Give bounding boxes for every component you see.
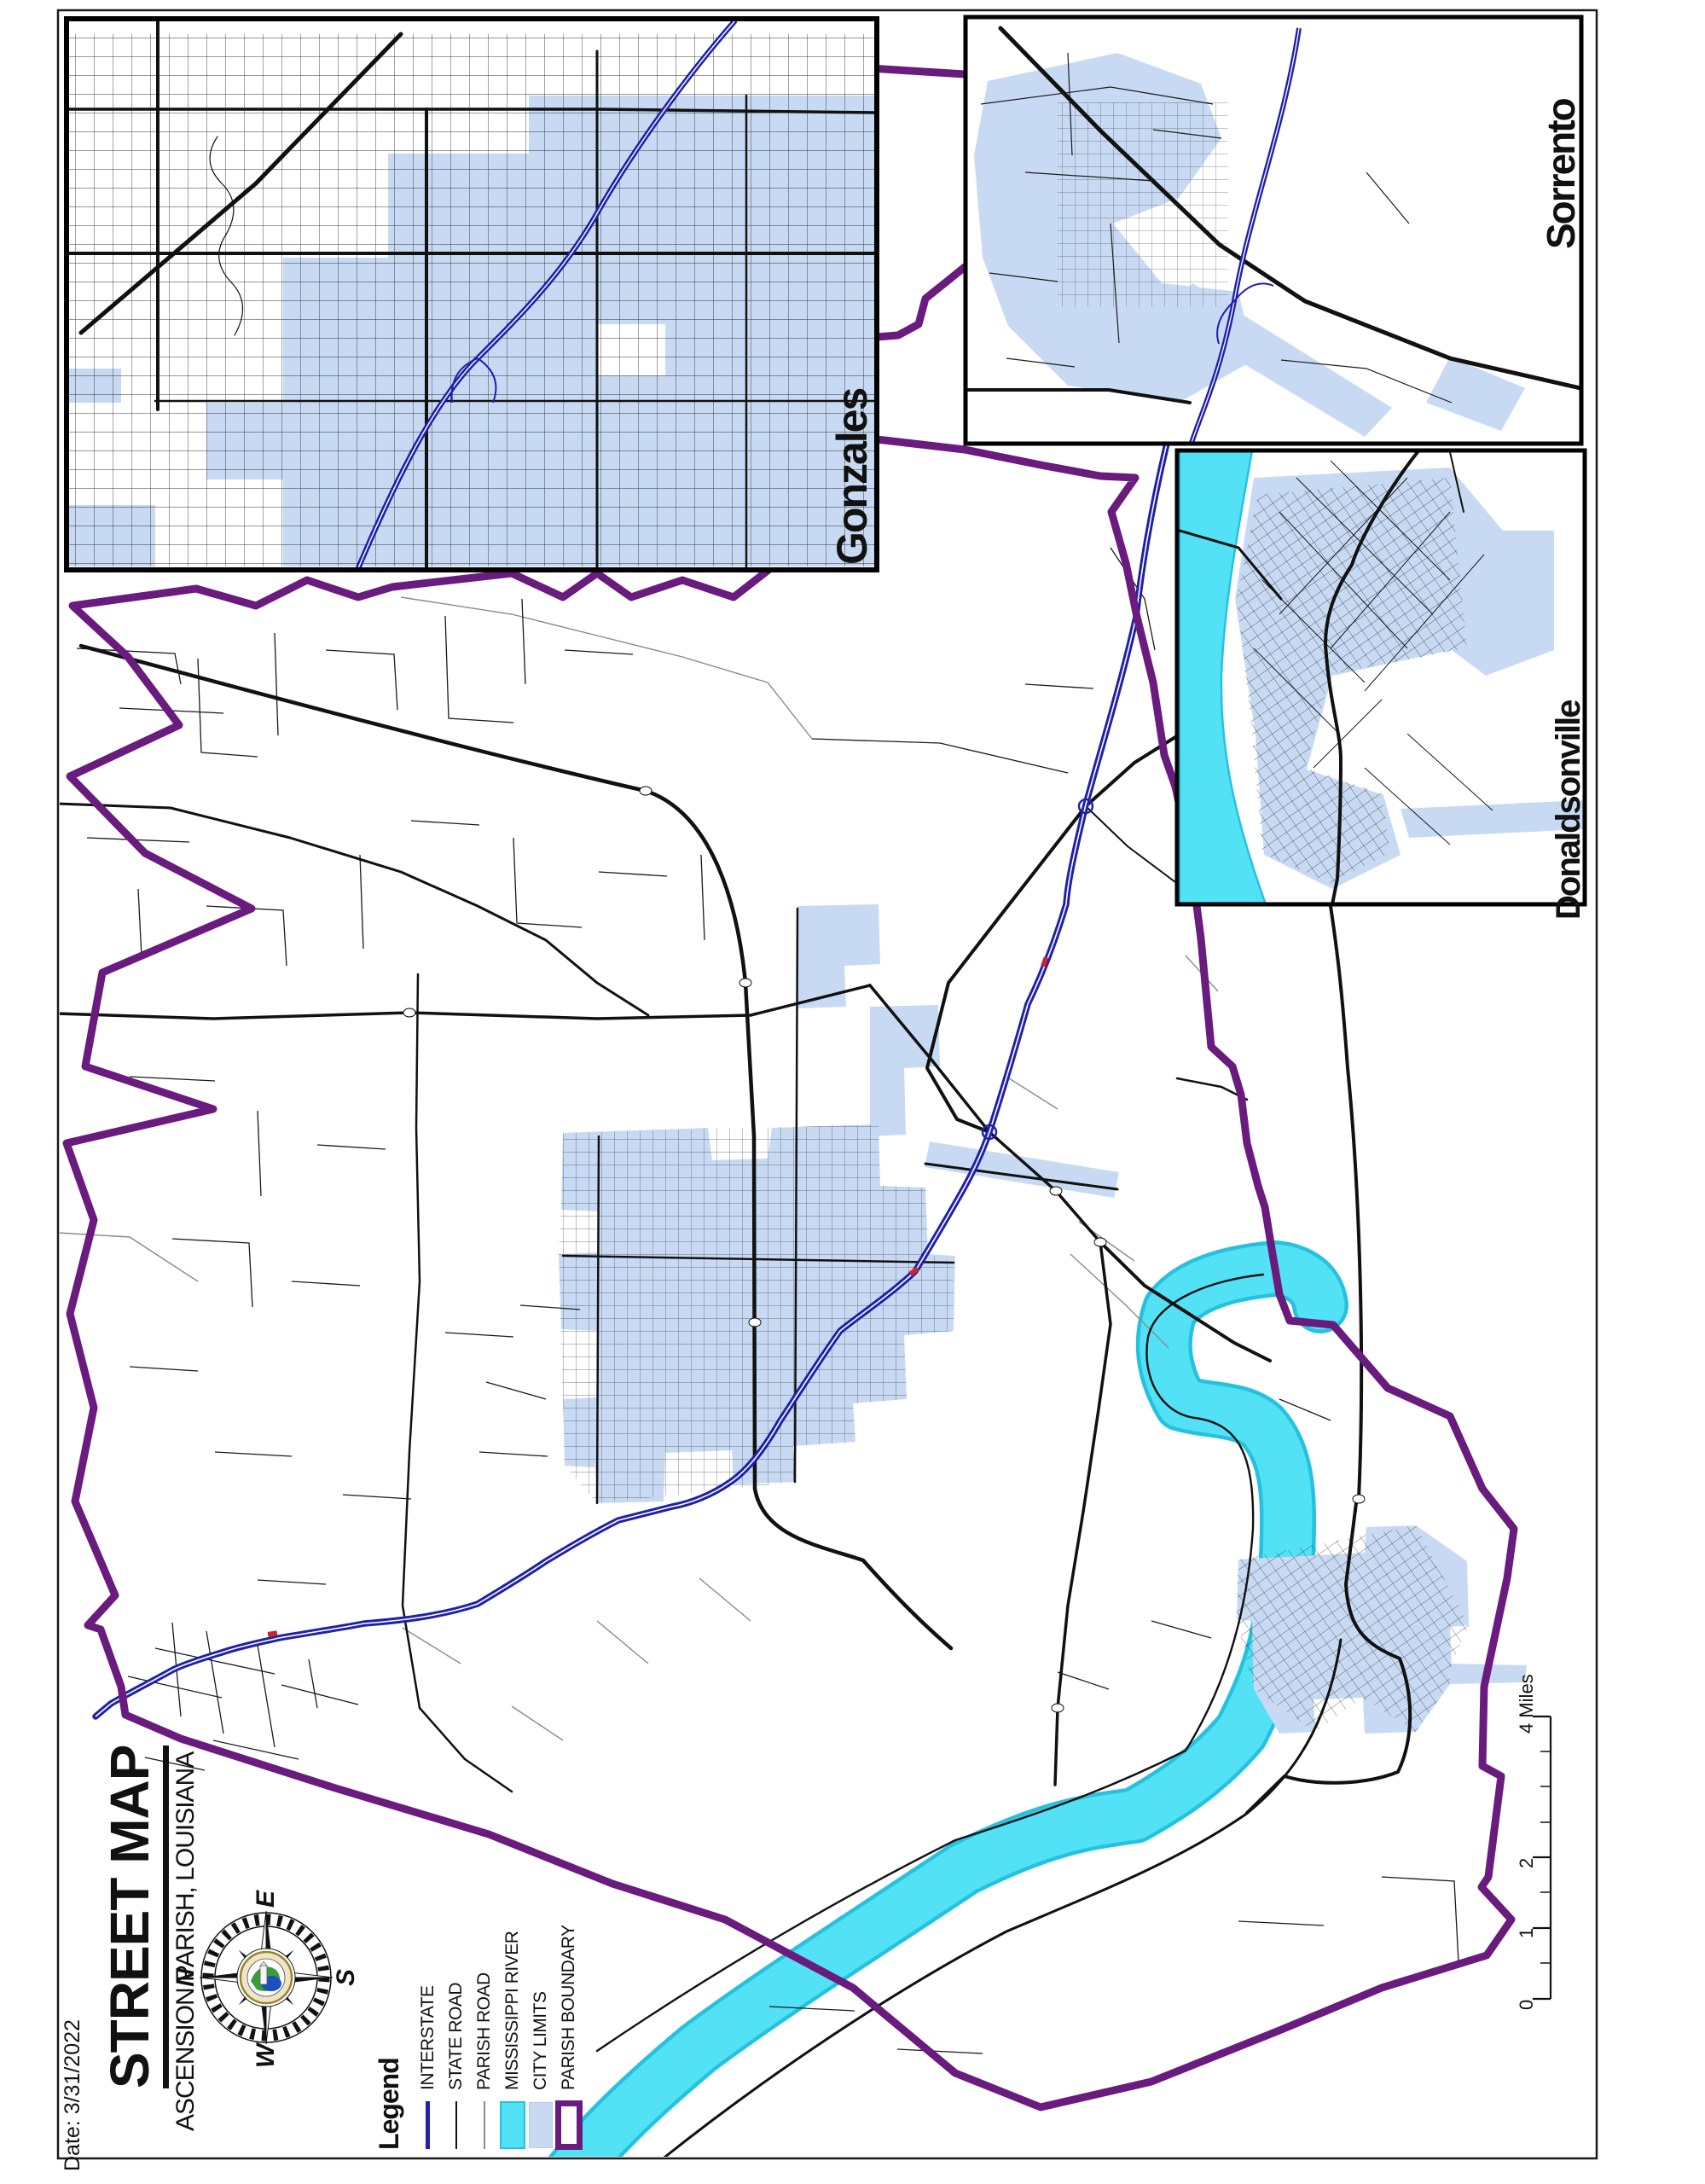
legend-item-state-road: STATE ROAD: [442, 1860, 470, 2150]
parish-road-line-icon: [484, 2100, 485, 2150]
inset-label-sorrento: Sorrento: [1540, 99, 1583, 249]
legend: Legend INTERSTATE STATE ROAD PARISH ROAD…: [374, 1860, 583, 2150]
date-label: Date: 3/31/2022: [61, 2019, 84, 2171]
inset-sorrento: [966, 17, 1581, 444]
scale-label-0: 0: [1517, 2000, 1537, 2010]
scale-label-2: 2: [1517, 1858, 1537, 1868]
parish-boundary-swatch-icon: [555, 2100, 583, 2150]
city-limits-swatch-icon: [529, 2100, 553, 2150]
parish-seal: [237, 1949, 295, 2007]
interstate-line-icon: [426, 2100, 430, 2150]
scale-label-1: 1: [1517, 1928, 1537, 1938]
page-title: STREET MAP: [101, 1745, 169, 2088]
legend-item-parish-road: PARISH ROAD: [470, 1860, 498, 2150]
scale-label-4-miles: 4 Miles: [1517, 1674, 1537, 1734]
legend-item-parish-boundary: PARISH BOUNDARY: [554, 1860, 583, 2150]
inset-label-gonzales: Gonzales: [829, 389, 875, 565]
compass-east-label: E: [247, 1880, 285, 1918]
compass-south-label: S: [328, 1959, 365, 1996]
river-swatch-icon: [500, 2100, 525, 2150]
inset-donaldsonville: [1177, 450, 1585, 904]
interstate-10: [96, 444, 1167, 1716]
compass-north-label: N: [167, 1959, 205, 1996]
state-road-line-icon: [455, 2100, 457, 2150]
inset-label-donaldsonville: Donaldsonville: [1551, 701, 1587, 921]
rural-roads-w: [130, 1077, 580, 1584]
compass-west-label: W: [247, 2037, 285, 2075]
legend-item-interstate: INTERSTATE: [414, 1860, 442, 2150]
compass-rose: [200, 1911, 333, 2044]
map-sheet: STREET MAP ASCENSION PARISH, LOUISIANA D…: [0, 0, 1705, 2184]
legend-item-mississippi-river: MISSISSIPPI RIVER: [498, 1860, 526, 2150]
map-graphics: [0, 0, 1705, 2184]
page-subtitle: ASCENSION PARISH, LOUISIANA: [172, 1752, 200, 2131]
inset-gonzales: [67, 19, 877, 570]
legend-heading: Legend: [374, 1860, 405, 2150]
legend-item-city-limits: CITY LIMITS: [526, 1860, 554, 2150]
